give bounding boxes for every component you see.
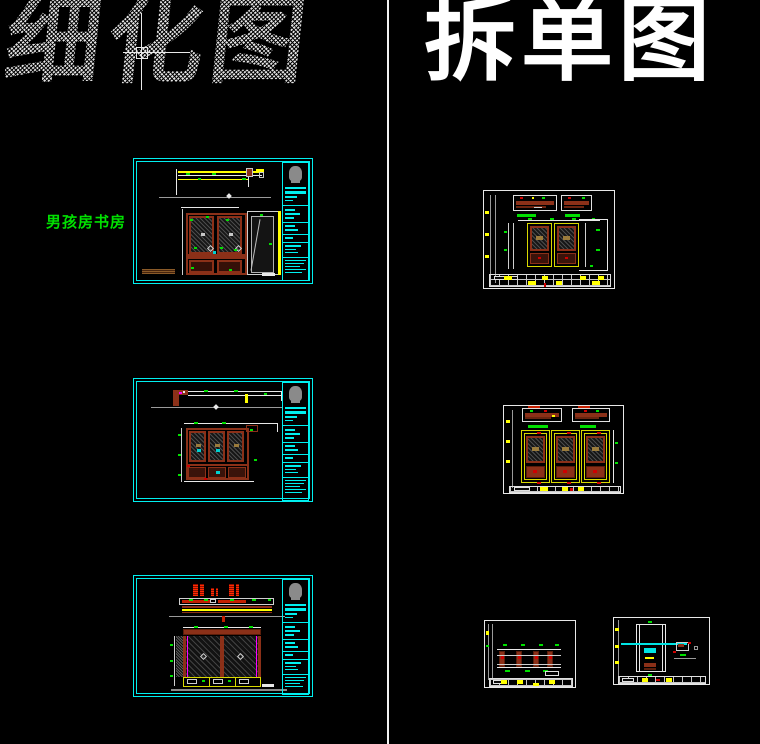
drawing-entity[interactable] [282,651,309,652]
drawing-entity[interactable] [530,410,533,412]
drawing-entity[interactable] [204,599,208,601]
cad-canvas[interactable]: 细化图 拆单图 男孩房书房 [0,0,760,744]
drawing-entity[interactable] [260,214,263,216]
drawing-entity[interactable] [285,626,295,628]
drawing-entity[interactable] [216,449,220,452]
drawing-entity[interactable] [285,437,294,439]
drawing-entity[interactable] [504,249,507,251]
drawing-entity[interactable] [216,471,220,474]
refined-drawings-title[interactable]: 细化图 [0,0,318,96]
drawing-entity[interactable] [636,624,637,672]
drawing-entity[interactable] [176,636,183,677]
drawing-entity[interactable] [285,630,300,632]
drawing-entity[interactable] [187,254,245,259]
drawing-entity[interactable] [285,196,297,198]
drawing-entity[interactable] [268,599,271,601]
drawing-entity[interactable] [567,482,571,484]
drawing-entity[interactable] [540,487,548,491]
drawing-entity[interactable] [513,223,514,269]
drawing-entity[interactable] [285,492,302,493]
drawing-entity[interactable] [512,410,513,488]
drawing-entity[interactable] [228,680,231,682]
drawing-entity[interactable] [285,237,293,239]
drawing-entity[interactable] [282,442,309,443]
drawing-entity[interactable] [585,223,586,267]
drawing-entity[interactable] [250,429,253,431]
drawing-entity[interactable] [497,664,561,665]
drawing-entity[interactable] [567,432,571,434]
drawing-entity[interactable] [518,656,521,659]
drawing-entity[interactable] [506,460,510,463]
drawing-entity[interactable] [644,648,656,653]
drawing-entity[interactable] [285,677,306,678]
drawing-entity[interactable] [282,462,309,463]
drawing-entity[interactable] [186,464,249,466]
drawing-entity[interactable] [285,480,306,481]
drawing-entity[interactable] [597,432,601,434]
drawing-entity[interactable] [174,636,175,686]
drawing-entity[interactable] [246,168,253,177]
drawing-entity[interactable] [183,629,261,635]
drawing-entity[interactable] [533,683,539,686]
drawing-entity[interactable] [596,249,600,251]
drawing-entity[interactable] [254,459,257,461]
drawing-entity[interactable] [285,245,301,247]
drawing-entity[interactable] [492,624,493,680]
drawing-entity[interactable] [563,470,567,473]
drawing-entity[interactable] [285,260,306,261]
drawing-entity[interactable] [518,220,600,221]
drawing-entity[interactable] [222,616,225,622]
drawing-entity[interactable] [201,233,205,236]
drawing-entity[interactable] [178,474,181,476]
drawing-entity[interactable] [217,260,242,273]
drawing-entity[interactable] [607,219,608,271]
drawing-entity[interactable] [539,644,543,646]
drawing-entity[interactable] [211,588,214,596]
drawing-entity[interactable] [535,656,538,659]
drawing-entity[interactable] [262,684,274,687]
drawing-entity[interactable] [562,447,569,451]
drawing-entity[interactable] [229,233,233,236]
drawing-entity[interactable] [285,654,293,656]
drawing-entity[interactable] [580,425,596,428]
drawing-entity[interactable] [187,679,197,684]
drawing-entity[interactable] [504,276,512,280]
drawing-entity[interactable] [615,661,619,664]
drawing-entity[interactable] [578,487,584,491]
drawing-entity[interactable] [537,432,541,434]
drawing-entity[interactable] [575,417,599,419]
drawing-entity[interactable] [485,233,489,236]
drawing-entity[interactable] [579,270,608,271]
drawing-entity[interactable] [285,617,293,618]
drawing-entity[interactable] [505,670,510,672]
drawing-entity[interactable] [262,273,275,276]
drawing-entity[interactable] [497,667,561,668]
drawing-entity[interactable] [282,622,309,623]
drawing-entity[interactable] [291,180,300,183]
drawing-entity[interactable] [194,626,198,628]
drawing-entity[interactable] [258,636,261,677]
drawing-entity[interactable] [282,205,309,206]
drawing-entity[interactable] [285,634,294,636]
drawing-entity[interactable] [176,169,177,195]
drawing-entity[interactable] [520,197,523,199]
drawing-entity[interactable] [501,680,507,684]
drawing-entity[interactable] [525,417,551,419]
drawing-entity[interactable] [234,249,237,251]
drawing-entity[interactable] [597,482,601,484]
drawing-entity[interactable] [289,166,302,181]
drawing-entity[interactable] [542,197,545,199]
drawing-entity[interactable] [285,272,302,273]
drawing-entity[interactable] [282,234,309,235]
drawing-entity[interactable] [544,410,547,412]
drawing-entity[interactable] [142,269,175,274]
drawing-entity[interactable] [592,281,600,285]
drawing-entity[interactable] [282,639,309,640]
drawing-entity[interactable] [204,478,207,480]
drawing-entity[interactable] [285,416,297,418]
drawing-entity[interactable] [285,680,304,681]
drawing-entity[interactable] [285,642,295,644]
detail-frame-2[interactable] [133,378,313,502]
drawing-entity[interactable] [582,197,585,199]
drawing-entity[interactable] [206,216,209,218]
drawing-entity[interactable] [249,626,253,628]
drawing-entity[interactable] [285,613,297,615]
drawing-entity[interactable] [579,219,608,220]
drawing-entity[interactable] [282,674,309,675]
drawing-entity[interactable] [215,444,220,447]
drawing-entity[interactable] [170,660,173,662]
drawing-entity[interactable] [178,434,181,436]
drawing-entity[interactable] [285,608,306,611]
drawing-entity[interactable] [222,422,226,424]
drawing-entity[interactable] [656,679,660,681]
drawing-entity[interactable] [187,636,188,677]
detail-frame-1[interactable] [133,158,313,284]
drawing-entity[interactable] [532,197,534,199]
drawing-entity[interactable] [580,276,586,280]
drawing-entity[interactable] [615,442,618,444]
drawing-entity[interactable] [285,191,306,194]
drawing-entity[interactable] [282,477,309,478]
drawing-entity[interactable] [234,444,239,447]
drawing-entity[interactable] [226,219,229,221]
drawing-entity[interactable] [517,214,536,217]
drawing-entity[interactable] [644,663,656,667]
drawing-entity[interactable] [285,457,293,459]
drawing-entity[interactable] [285,669,298,670]
drawing-entity[interactable] [615,645,619,648]
drawing-entity[interactable] [549,656,552,659]
drawing-entity[interactable] [285,200,293,201]
drawing-entity[interactable] [565,257,568,259]
drawing-entity[interactable] [564,206,584,208]
drawing-entity[interactable] [289,386,302,401]
drawing-entity[interactable] [550,218,554,220]
drawing-entity[interactable] [596,229,600,231]
drawing-entity[interactable] [202,680,205,682]
drawing-entity[interactable] [570,488,573,491]
drawing-entity[interactable] [193,584,198,596]
breakdown-frame-2[interactable] [503,405,624,494]
drawing-entity[interactable] [204,390,208,392]
drawing-entity[interactable] [196,444,201,447]
drawing-entity[interactable] [528,218,532,220]
drawing-entity[interactable] [178,454,181,456]
drawing-entity[interactable] [264,393,267,395]
drawing-entity[interactable] [285,686,303,687]
drawing-entity[interactable] [598,276,604,280]
drawing-entity[interactable] [285,683,300,684]
drawing-entity[interactable] [181,428,182,482]
drawing-entity[interactable] [615,462,618,464]
drawing-entity[interactable] [542,276,548,280]
drawing-entity[interactable] [213,404,219,410]
drawing-entity[interactable] [285,209,295,211]
drawing-entity[interactable] [497,655,561,656]
breakdown-frame-4[interactable] [613,617,710,685]
drawing-entity[interactable] [291,597,300,600]
drawing-entity[interactable] [622,678,634,682]
drawing-entity[interactable] [285,217,294,219]
drawing-entity[interactable] [285,483,304,484]
drawing-entity[interactable] [545,671,559,676]
drawing-entity[interactable] [282,425,309,426]
drawing-entity[interactable] [285,449,298,451]
drawing-entity[interactable] [562,487,568,491]
drawing-entity[interactable] [159,197,271,198]
drawing-entity[interactable] [269,243,272,245]
drawing-entity[interactable] [544,283,546,287]
drawing-entity[interactable] [197,449,201,452]
drawing-entity[interactable] [285,225,295,227]
drawing-entity[interactable] [229,269,232,271]
drawing-entity[interactable] [239,679,249,684]
drawing-entity[interactable] [568,197,571,199]
drawing-entity[interactable] [229,584,234,596]
drawing-entity[interactable] [508,223,509,269]
drawing-entity[interactable] [256,169,264,171]
drawing-entity[interactable] [213,251,216,254]
drawing-entity[interactable] [256,636,257,677]
drawing-entity[interactable] [282,222,309,223]
drawing-entity[interactable] [236,584,239,596]
drawing-entity[interactable] [200,584,204,596]
drawing-entity[interactable] [285,213,300,215]
drawing-entity[interactable] [220,247,223,249]
detail-frame-3[interactable] [133,575,313,697]
drawing-entity[interactable] [556,281,562,285]
drawing-entity[interactable] [648,621,652,623]
drawing-entity[interactable] [285,252,298,253]
breakdown-drawings-title[interactable]: 拆单图 [424,0,715,94]
drawing-entity[interactable] [506,420,510,423]
drawing-entity[interactable] [678,644,684,647]
drawing-entity[interactable] [183,636,186,677]
drawing-entity[interactable] [277,423,278,432]
drawing-entity[interactable] [285,266,300,267]
drawing-entity[interactable] [285,420,293,421]
drawing-entity[interactable] [485,255,489,258]
drawing-entity[interactable] [528,425,548,428]
drawing-entity[interactable] [181,207,239,208]
drawing-entity[interactable] [688,642,691,644]
drawing-entity[interactable] [613,430,614,483]
drawing-entity[interactable] [503,644,507,646]
drawing-entity[interactable] [282,454,309,455]
drawing-entity[interactable] [188,467,206,478]
drawing-entity[interactable] [212,173,216,175]
drawing-entity[interactable] [495,195,496,283]
drawing-entity[interactable] [285,486,300,487]
drawing-entity[interactable] [497,649,561,650]
drawing-entity[interactable] [198,178,201,180]
drawing-entity[interactable] [572,218,576,220]
drawing-entity[interactable] [285,646,298,648]
drawing-entity[interactable] [210,599,216,603]
drawing-entity[interactable] [504,231,507,233]
drawing-entity[interactable] [285,465,301,467]
drawing-entity[interactable] [537,482,541,484]
drawing-entity[interactable] [555,644,559,646]
drawing-entity[interactable] [285,472,298,473]
drawing-entity[interactable] [209,677,210,687]
drawing-entity[interactable] [563,236,570,240]
drawing-entity[interactable] [285,411,306,414]
drawing-entity[interactable] [169,616,285,617]
drawing-entity[interactable] [170,675,173,677]
drawing-entity[interactable] [486,645,489,647]
drawing-entity[interactable] [242,178,246,180]
drawing-entity[interactable] [278,211,281,275]
drawing-entity[interactable] [182,612,272,613]
drawing-entity[interactable] [291,400,300,403]
drawing-entity[interactable] [252,599,256,601]
drawing-entity[interactable] [235,677,236,687]
drawing-entity[interactable] [285,666,296,667]
drawing-entity[interactable] [285,263,304,264]
drawing-entity[interactable] [285,429,295,431]
drawing-entity[interactable] [596,410,599,412]
drawing-entity[interactable] [285,662,301,664]
drawing-entity[interactable] [645,657,654,659]
drawing-entity[interactable] [182,609,272,611]
drawing-entity[interactable] [592,447,599,451]
drawing-entity[interactable] [673,651,676,653]
drawing-entity[interactable] [285,187,306,189]
drawing-entity[interactable] [184,481,254,482]
drawing-entity[interactable] [191,267,194,269]
drawing-entity[interactable] [674,658,696,659]
drawing-entity[interactable] [584,410,587,412]
drawing-entity[interactable] [230,599,234,601]
drawing-entity[interactable] [248,177,249,187]
drawing-entity[interactable] [666,678,672,682]
drawing-entity[interactable] [186,173,190,175]
drawing-entity[interactable] [565,214,580,217]
drawing-entity[interactable] [234,390,238,392]
drawing-entity[interactable] [285,269,306,270]
drawing-entity[interactable] [525,670,530,672]
drawing-entity[interactable] [259,172,264,178]
drawing-entity[interactable] [182,209,183,275]
room-label[interactable]: 男孩房书房 [46,211,126,232]
drawing-entity[interactable] [639,624,640,672]
drawing-entity[interactable] [636,671,666,672]
drawing-entity[interactable] [506,440,510,443]
drawing-entity[interactable] [534,207,542,208]
drawing-entity[interactable] [517,680,523,684]
drawing-entity[interactable] [285,433,300,435]
drawing-entity[interactable] [536,236,543,240]
drawing-entity[interactable] [171,689,287,691]
drawing-entity[interactable] [501,656,504,659]
drawing-entity[interactable] [220,636,224,677]
drawing-entity[interactable] [285,229,298,231]
drawing-entity[interactable] [528,281,536,285]
drawing-entity[interactable] [285,445,295,447]
drawing-entity[interactable] [516,201,554,205]
drawing-entity[interactable] [188,395,282,396]
drawing-entity[interactable] [549,680,555,684]
drawing-entity[interactable] [552,415,555,417]
drawing-entity[interactable] [642,678,648,682]
drawing-entity[interactable] [282,257,309,258]
drawing-entity[interactable] [486,631,489,635]
drawing-entity[interactable] [532,447,539,451]
drawing-entity[interactable] [187,465,190,467]
drawing-entity[interactable] [183,391,185,393]
drawing-entity[interactable] [228,467,246,478]
drawing-entity[interactable] [182,606,272,608]
drawing-entity[interactable] [593,470,597,473]
breakdown-frame-3[interactable] [484,620,576,688]
drawing-entity[interactable] [224,626,228,628]
drawing-entity[interactable] [179,392,182,394]
drawing-entity[interactable] [644,668,656,670]
drawing-entity[interactable] [285,469,296,470]
drawing-entity[interactable] [282,659,309,660]
drawing-entity[interactable] [533,470,537,473]
drawing-entity[interactable] [285,249,296,250]
drawing-entity[interactable] [538,257,541,259]
drawing-entity[interactable] [615,628,619,631]
drawing-entity[interactable] [194,422,198,424]
drawing-entity[interactable] [216,588,218,596]
drawing-entity[interactable] [285,489,306,490]
drawing-entity[interactable] [178,179,248,180]
drawing-entity[interactable] [282,242,309,243]
drawing-entity[interactable] [213,679,223,684]
breakdown-frame-1[interactable] [483,190,615,289]
drawing-entity[interactable] [170,644,173,646]
drawing-entity[interactable] [289,583,302,598]
drawing-entity[interactable] [194,247,197,249]
drawing-entity[interactable] [564,201,589,205]
drawing-entity[interactable] [680,654,686,656]
drawing-entity[interactable] [285,604,306,606]
drawing-entity[interactable] [245,394,248,403]
drawing-entity[interactable] [590,265,593,267]
drawing-entity[interactable] [662,624,663,672]
drawing-entity[interactable] [485,211,489,214]
drawing-entity[interactable] [636,624,666,625]
drawing-entity[interactable] [189,599,193,601]
